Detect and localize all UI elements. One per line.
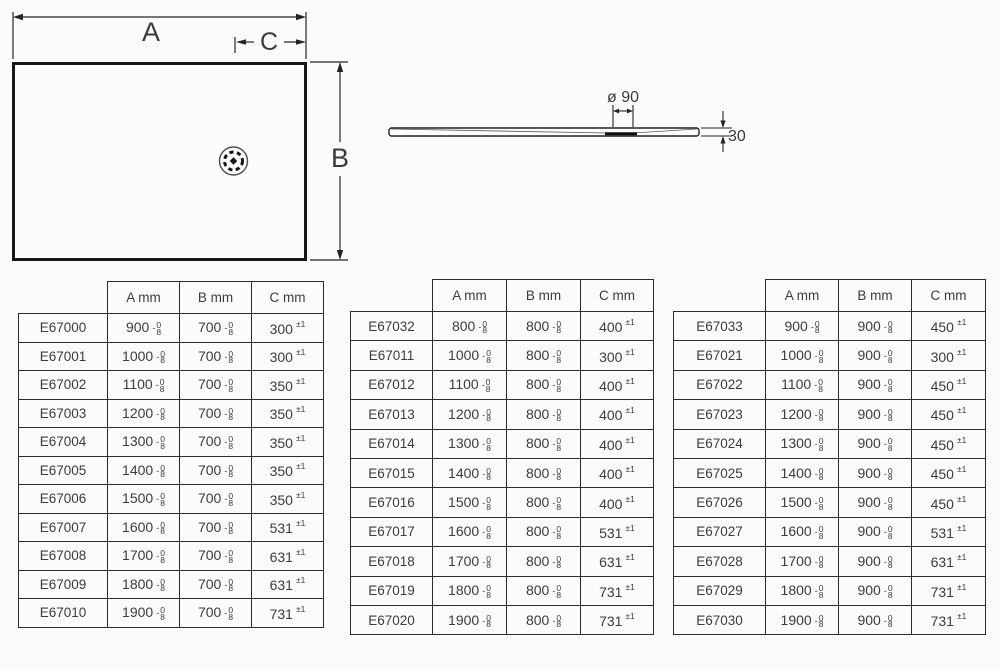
dim-a-cell: 1000-08 [766,341,839,370]
plan-view-diagram: A C B [0,0,370,270]
tolerance-sign: - [156,381,159,390]
tolerance: -08 [224,522,233,535]
tolerance: -08 [815,350,824,363]
tolerance-lower: 8 [160,528,165,535]
dim-c-cell: 450±1 [912,488,986,517]
dim-b-cell: 800-08 [507,429,581,458]
tolerance: ±1 [957,347,966,357]
dimension-value: 450 [931,378,954,394]
tolerance: -08 [156,522,165,535]
tolerance-sign: - [884,499,887,508]
table-row: E670051400-08700-08350±1 [19,456,324,485]
tolerance-lower: 8 [160,471,165,478]
dimension-value: 631 [599,554,622,570]
product-code: E67023 [674,400,766,429]
table-row: E67033900-08900-08450±1 [674,312,986,341]
tolerance-stack: 08 [556,438,561,451]
dim-b-cell: 900-08 [839,576,912,605]
product-code: E67016 [351,488,433,517]
dim-c-cell: 731±1 [581,576,654,605]
product-code: E67032 [351,312,433,341]
dimension-value: 1200 [448,406,479,422]
dimension-value: 731 [931,584,954,600]
dim-c-cell: 350±1 [252,428,324,457]
tolerance-sign: - [815,528,818,537]
header-row: A mmB mmC mm [674,280,986,312]
dimension-value: 900 [857,406,880,422]
tolerance-sign: - [552,470,555,479]
tolerance-sign: - [224,467,227,476]
dim-a-cell: 1900-08 [433,605,507,634]
tolerance-stack: 08 [556,497,561,510]
tolerance-stack: 08 [556,468,561,481]
dim-c-cell: 450±1 [912,312,986,341]
tolerance-lower: 8 [888,562,893,569]
tolerance-sign: - [884,558,887,567]
tolerance: -08 [815,409,824,422]
product-code: E67000 [19,314,108,343]
dimension-value: 1500 [781,494,812,510]
dim-b-cell: 700-08 [180,513,252,542]
dimension-value: 700 [198,576,221,592]
dim-a-cell: 1400-08 [108,456,180,485]
dim-c-cell: 350±1 [252,485,324,514]
tolerance: -08 [811,321,820,334]
dimension-value: 700 [198,547,221,563]
dim-a-cell: 900-08 [766,312,839,341]
tolerance-lower: 8 [228,471,233,478]
tolerance-sign: - [815,411,818,420]
dimension-value: 700 [198,376,221,392]
dim-c-cell: 450±1 [912,370,986,399]
dimension-value: 900 [126,319,149,335]
tolerance: -08 [482,556,491,569]
tolerance: -08 [815,526,824,539]
tolerance-stack: 08 [160,579,165,592]
tolerance-lower: 8 [160,357,165,364]
dimension-value: 1700 [122,547,153,563]
dimension-value: 1000 [448,347,479,363]
dim-drain-diameter [613,105,633,127]
dim-a-cell: 1800-08 [433,576,507,605]
tolerance-sign: - [884,528,887,537]
dimension-value: 731 [931,613,954,629]
tolerance-lower: 8 [888,504,893,511]
tolerance-lower: 8 [819,533,824,540]
tolerance: -08 [224,351,233,364]
table-row: E670251400-08900-08450±1 [674,458,986,487]
dimension-value: 1700 [448,553,479,569]
product-code: E67030 [674,605,766,634]
dim-b-cell: 900-08 [839,400,912,429]
dim-b-cell: 700-08 [180,456,252,485]
column-header-c: C mm [252,282,324,314]
tolerance-sign: - [552,499,555,508]
tolerance-lower: 8 [486,357,491,364]
dim-c-cell: 450±1 [912,458,986,487]
dimension-value: 1400 [448,465,479,481]
tolerance: -08 [482,615,491,628]
table-row: E670211000-08900-08300±1 [674,341,986,370]
tolerance: ±1 [957,494,966,504]
tolerance-lower: 8 [888,357,893,364]
table-row: E670141300-08800-08400±1 [351,429,654,458]
product-code: E67011 [351,341,433,370]
table-row: E670071600-08700-08531±1 [19,513,324,542]
tolerance-stack: 08 [888,615,893,628]
dim-b-cell: 800-08 [507,370,581,399]
thickness-label: 30 [728,128,746,145]
tolerance-stack: 08 [819,526,824,539]
dimension-value: 900 [857,318,880,334]
tolerance-sign: - [478,323,481,332]
tolerance-sign: - [815,352,818,361]
tolerance-lower: 8 [888,474,893,481]
dimension-value: 1300 [122,433,153,449]
tolerance-stack: 08 [888,556,893,569]
dim-b-cell: 700-08 [180,342,252,371]
dimension-value: 400 [599,407,622,423]
dimension-value: 1500 [448,494,479,510]
tolerance-lower: 8 [556,621,561,628]
tolerance-sign: - [482,470,485,479]
tolerance-stack: 08 [819,409,824,422]
tolerance-stack: 08 [160,436,165,449]
tolerance-lower: 8 [819,415,824,422]
dim-c-cell: 400±1 [581,400,654,429]
tolerance: ±1 [296,433,305,443]
tolerance-lower: 8 [888,327,893,334]
dim-b-cell: 900-08 [839,458,912,487]
tolerance-sign: - [156,581,159,590]
tolerance: ±1 [625,582,634,592]
tolerance-sign: - [156,552,159,561]
dim-b-cell: 800-08 [507,576,581,605]
tolerance-sign: - [156,609,159,618]
product-code: E67005 [19,456,108,485]
tolerance-stack: 08 [556,379,561,392]
tolerance: -08 [152,322,161,335]
tolerance: -08 [815,497,824,510]
tolerance-sign: - [552,587,555,596]
dimension-value: 350 [270,463,293,479]
tolerance: ±1 [625,405,634,415]
dim-a-cell: 1700-08 [766,547,839,576]
tolerance-stack: 08 [160,465,165,478]
dimension-value: 300 [599,349,622,365]
tolerance-sign: - [156,410,159,419]
dim-b-cell: 900-08 [839,488,912,517]
dimension-value: 700 [198,319,221,335]
tolerance-sign: - [884,587,887,596]
dimension-value: 1000 [781,347,812,363]
tolerance: -08 [884,468,893,481]
tolerance-lower: 8 [156,329,161,336]
product-code: E67021 [674,341,766,370]
product-code: E67022 [674,370,766,399]
dim-a-cell: 1500-08 [433,488,507,517]
tolerance: ±1 [296,404,305,414]
tolerance-sign: - [552,528,555,537]
dimension-value: 350 [270,406,293,422]
tolerance: -08 [815,585,824,598]
dimension-value: 1200 [122,405,153,421]
product-code: E67006 [19,485,108,514]
tolerance-stack: 08 [160,351,165,364]
tolerance-stack: 08 [819,350,824,363]
tolerance-lower: 8 [556,474,561,481]
tolerance-stack: 08 [482,321,487,334]
table-row: E670031200-08700-08350±1 [19,399,324,428]
dimension-value: 1600 [122,519,153,535]
tolerance-sign: - [552,558,555,567]
tolerance-sign: - [815,558,818,567]
tolerance-stack: 08 [818,379,823,392]
tolerance: -08 [156,493,165,506]
dimension-value: 1100 [123,376,153,392]
table-row: E670091800-08700-08631±1 [19,570,324,599]
tolerance: -08 [552,409,561,422]
dimension-value: 1900 [781,612,812,628]
product-code: E67017 [351,517,433,546]
dim-c-cell: 300±1 [252,314,324,343]
dimension-value: 1800 [122,576,153,592]
header-row: A mmB mmC mm [351,280,654,312]
table-row: E670221100-08900-08450±1 [674,370,986,399]
spec-table-900-series: A mmB mmC mmE67033900-08900-08450±1E6702… [673,279,986,635]
tolerance-lower: 8 [556,415,561,422]
dim-b-cell: 900-08 [839,312,912,341]
dim-a-label: A [142,17,160,47]
tolerance-lower: 8 [819,504,824,511]
tolerance-sign: - [552,411,555,420]
dim-c-cell: 731±1 [252,599,324,628]
tolerance-sign: - [156,495,159,504]
dim-a-cell: 1100-08 [766,370,839,399]
table-row: E670281700-08900-08631±1 [674,547,986,576]
dimension-value: 350 [270,435,293,451]
tolerance-lower: 8 [819,562,824,569]
dimension-value: 1400 [781,465,812,481]
tolerance-lower: 8 [160,414,165,421]
tolerance-lower: 8 [160,585,165,592]
tolerance-lower: 8 [486,474,491,481]
tolerance-sign: - [482,411,485,420]
tolerance: -08 [482,409,491,422]
product-code: E67012 [351,370,433,399]
table-row: E670131200-08800-08400±1 [351,400,654,429]
dim-a-cell: 1500-08 [108,485,180,514]
dim-a-cell: 1500-08 [766,488,839,517]
dim-b-cell: 900-08 [839,341,912,370]
tolerance-sign: - [156,438,159,447]
tolerance-stack: 08 [888,379,893,392]
tolerance: ±1 [957,317,966,327]
tolerance: -08 [552,438,561,451]
column-header-a: A mm [766,280,839,312]
dimension-value: 400 [599,466,622,482]
dim-c-cell: 300±1 [581,341,654,370]
tolerance: -08 [884,409,893,422]
tolerance: -08 [482,497,491,510]
dimension-value: 900 [857,376,880,392]
tolerance-lower: 8 [819,474,824,481]
tolerance-lower: 8 [815,327,820,334]
tolerance-sign: - [884,411,887,420]
tolerance-sign: - [224,581,227,590]
tolerance-stack: 08 [486,379,491,392]
dimension-value: 700 [198,604,221,620]
table-row: E67032800-08800-08400±1 [351,312,654,341]
dim-a-cell: 1300-08 [766,429,839,458]
dimension-value: 800 [526,435,549,451]
table-row: E670111000-08800-08300±1 [351,341,654,370]
dim-b-cell: 800-08 [507,605,581,634]
dimension-value: 700 [198,462,221,478]
product-code: E67001 [19,342,108,371]
product-code: E67019 [351,576,433,605]
tolerance-sign: - [482,440,485,449]
tolerance: ±1 [296,376,305,386]
tolerance-stack: 08 [486,497,491,510]
tolerance: ±1 [957,552,966,562]
tolerance: -08 [156,550,165,563]
tolerance-lower: 8 [556,386,561,393]
dimension-value: 800 [526,553,549,569]
table-row: E670291800-08900-08731±1 [674,576,986,605]
product-code: E67020 [351,605,433,634]
tolerance: -08 [156,436,165,449]
tolerance-lower: 8 [228,585,233,592]
product-code: E67014 [351,429,433,458]
tolerance: -08 [156,351,165,364]
dim-c-cell: 400±1 [581,370,654,399]
tolerance-lower: 8 [486,533,491,540]
dim-b-cell: 700-08 [180,542,252,571]
tolerance-sign: - [482,587,485,596]
tolerance: -08 [552,556,561,569]
tolerance-stack: 08 [819,468,824,481]
dimension-value: 700 [198,490,221,506]
dim-c-cell: 450±1 [912,429,986,458]
product-code: E67015 [351,458,433,487]
tolerance: -08 [884,585,893,598]
product-code: E67007 [19,513,108,542]
tolerance: -08 [552,350,561,363]
table-row: E670041300-08700-08350±1 [19,428,324,457]
column-header-a: A mm [433,280,507,312]
table-row: E67000900-08700-08300±1 [19,314,324,343]
tolerance-sign: - [884,323,887,332]
dimension-value: 1400 [122,462,153,478]
table-row: E670011000-08700-08300±1 [19,342,324,371]
dimension-value: 1500 [122,490,153,506]
dimension-value: 800 [526,347,549,363]
dimension-value: 900 [784,318,807,334]
tolerance: -08 [224,550,233,563]
tolerance-sign: - [815,499,818,508]
tolerance-sign: - [224,609,227,618]
dim-b-cell: 800-08 [507,458,581,487]
tolerance: ±1 [957,435,966,445]
table-row: E670021100-08700-08350±1 [19,371,324,400]
product-code: E67009 [19,570,108,599]
dimension-value: 631 [270,577,293,593]
dim-a-cell: 900-08 [108,314,180,343]
dimension-value: 700 [198,348,221,364]
dim-a-cell: 1400-08 [433,458,507,487]
dimension-value: 300 [931,349,954,365]
tolerance-lower: 8 [228,414,233,421]
dimension-value: 800 [452,318,475,334]
dim-b-cell: 700-08 [180,428,252,457]
product-code: E67026 [674,488,766,517]
dimension-value: 800 [526,494,549,510]
dim-a-cell: 1900-08 [108,599,180,628]
tolerance-stack: 08 [228,436,233,449]
tolerance-stack: 08 [819,438,824,451]
tolerance: ±1 [296,319,305,329]
dim-c-cell: 350±1 [252,399,324,428]
dimension-value: 1800 [781,582,812,598]
tolerance-lower: 8 [556,562,561,569]
tolerance-stack: 08 [228,522,233,535]
tolerance: -08 [224,465,233,478]
tolerance-lower: 8 [486,592,491,599]
tolerance: -08 [156,408,165,421]
tolerance: -08 [552,468,561,481]
dim-a-cell: 1100-08 [108,371,180,400]
dim-b-cell: 800-08 [507,547,581,576]
dim-b-cell: 700-08 [180,599,252,628]
dim-c-cell: 731±1 [581,605,654,634]
dim-c-cell: 531±1 [912,517,986,546]
dimension-value: 350 [270,378,293,394]
tolerance-sign: - [482,617,485,626]
tolerance-sign: - [815,587,818,596]
dim-b-cell: 900-08 [839,547,912,576]
tolerance-stack: 08 [228,322,233,335]
tolerance-lower: 8 [888,533,893,540]
table-row: E670261500-08900-08450±1 [674,488,986,517]
dim-a-cell: 1900-08 [766,605,839,634]
tolerance-lower: 8 [888,592,893,599]
dimension-value: 1600 [448,523,479,539]
dim-b-cell: 800-08 [507,400,581,429]
tolerance-sign: - [552,352,555,361]
dimension-value: 800 [526,612,549,628]
tolerance-lower: 8 [160,386,165,393]
dimension-value: 900 [857,465,880,481]
tolerance-sign: - [224,410,227,419]
dimension-value: 631 [931,554,954,570]
tolerance-lower: 8 [228,386,233,393]
tolerance: -08 [224,322,233,335]
dim-c-cell: 731±1 [912,605,986,634]
column-header-b: B mm [507,280,581,312]
dim-c-cell: 350±1 [252,456,324,485]
dim-b-cell: 800-08 [507,488,581,517]
corner-cell [674,280,766,312]
dimension-value: 800 [526,465,549,481]
tolerance-stack: 08 [160,550,165,563]
dim-a-cell: 1700-08 [108,542,180,571]
tolerance-lower: 8 [819,621,824,628]
tolerance-lower: 8 [160,500,165,507]
tolerance-lower: 8 [228,500,233,507]
product-code: E67028 [674,547,766,576]
spec-table-800-series: A mmB mmC mmE67032800-08800-08400±1E6701… [350,279,654,635]
